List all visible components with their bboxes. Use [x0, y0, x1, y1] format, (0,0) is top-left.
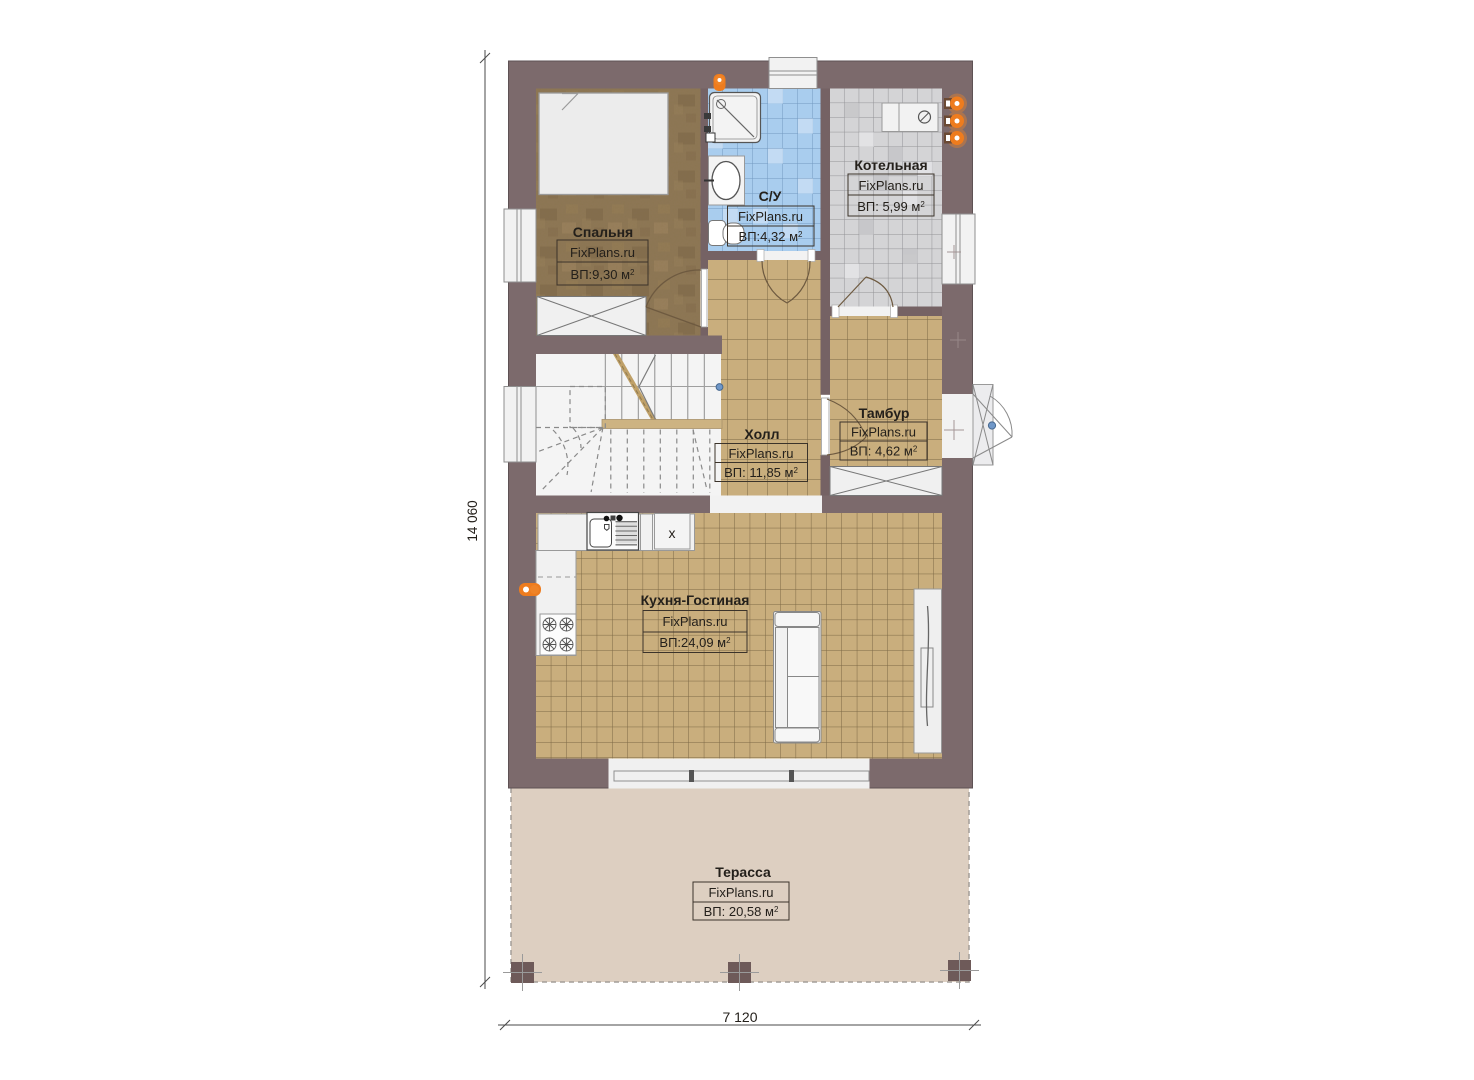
svg-text:FixPlans.ru: FixPlans.ru	[708, 885, 773, 900]
svg-text:С/У: С/У	[759, 188, 782, 204]
svg-text:FixPlans.ru: FixPlans.ru	[728, 446, 793, 461]
svg-text:FixPlans.ru: FixPlans.ru	[738, 209, 803, 224]
svg-text:Холл: Холл	[744, 426, 779, 442]
svg-text:Тамбур: Тамбур	[859, 405, 910, 421]
svg-text:ВП:4,32 м2: ВП:4,32 м2	[739, 229, 803, 244]
svg-text:х: х	[669, 525, 676, 541]
svg-text:ВП:24,09 м2: ВП:24,09 м2	[659, 635, 731, 650]
svg-text:14 060: 14 060	[465, 500, 480, 541]
svg-text:FixPlans.ru: FixPlans.ru	[662, 614, 727, 629]
svg-text:Кухня-Гостиная: Кухня-Гостиная	[641, 592, 750, 608]
svg-text:7 120: 7 120	[722, 1009, 757, 1025]
svg-text:Котельная: Котельная	[854, 157, 927, 173]
svg-text:FixPlans.ru: FixPlans.ru	[851, 425, 916, 440]
svg-text:ВП:9,30 м2: ВП:9,30 м2	[571, 267, 635, 282]
svg-text:FixPlans.ru: FixPlans.ru	[570, 245, 635, 260]
svg-text:Спальня: Спальня	[573, 224, 633, 240]
svg-text:Терасса: Терасса	[715, 864, 771, 880]
svg-text:ВП: 5,99 м2: ВП: 5,99 м2	[857, 199, 925, 214]
svg-text:ВП: 11,85 м2: ВП: 11,85 м2	[724, 465, 798, 480]
svg-text:ВП: 4,62 м2: ВП: 4,62 м2	[850, 444, 918, 459]
svg-text:FixPlans.ru: FixPlans.ru	[858, 178, 923, 193]
svg-text:ВП: 20,58 м2: ВП: 20,58 м2	[704, 904, 779, 919]
